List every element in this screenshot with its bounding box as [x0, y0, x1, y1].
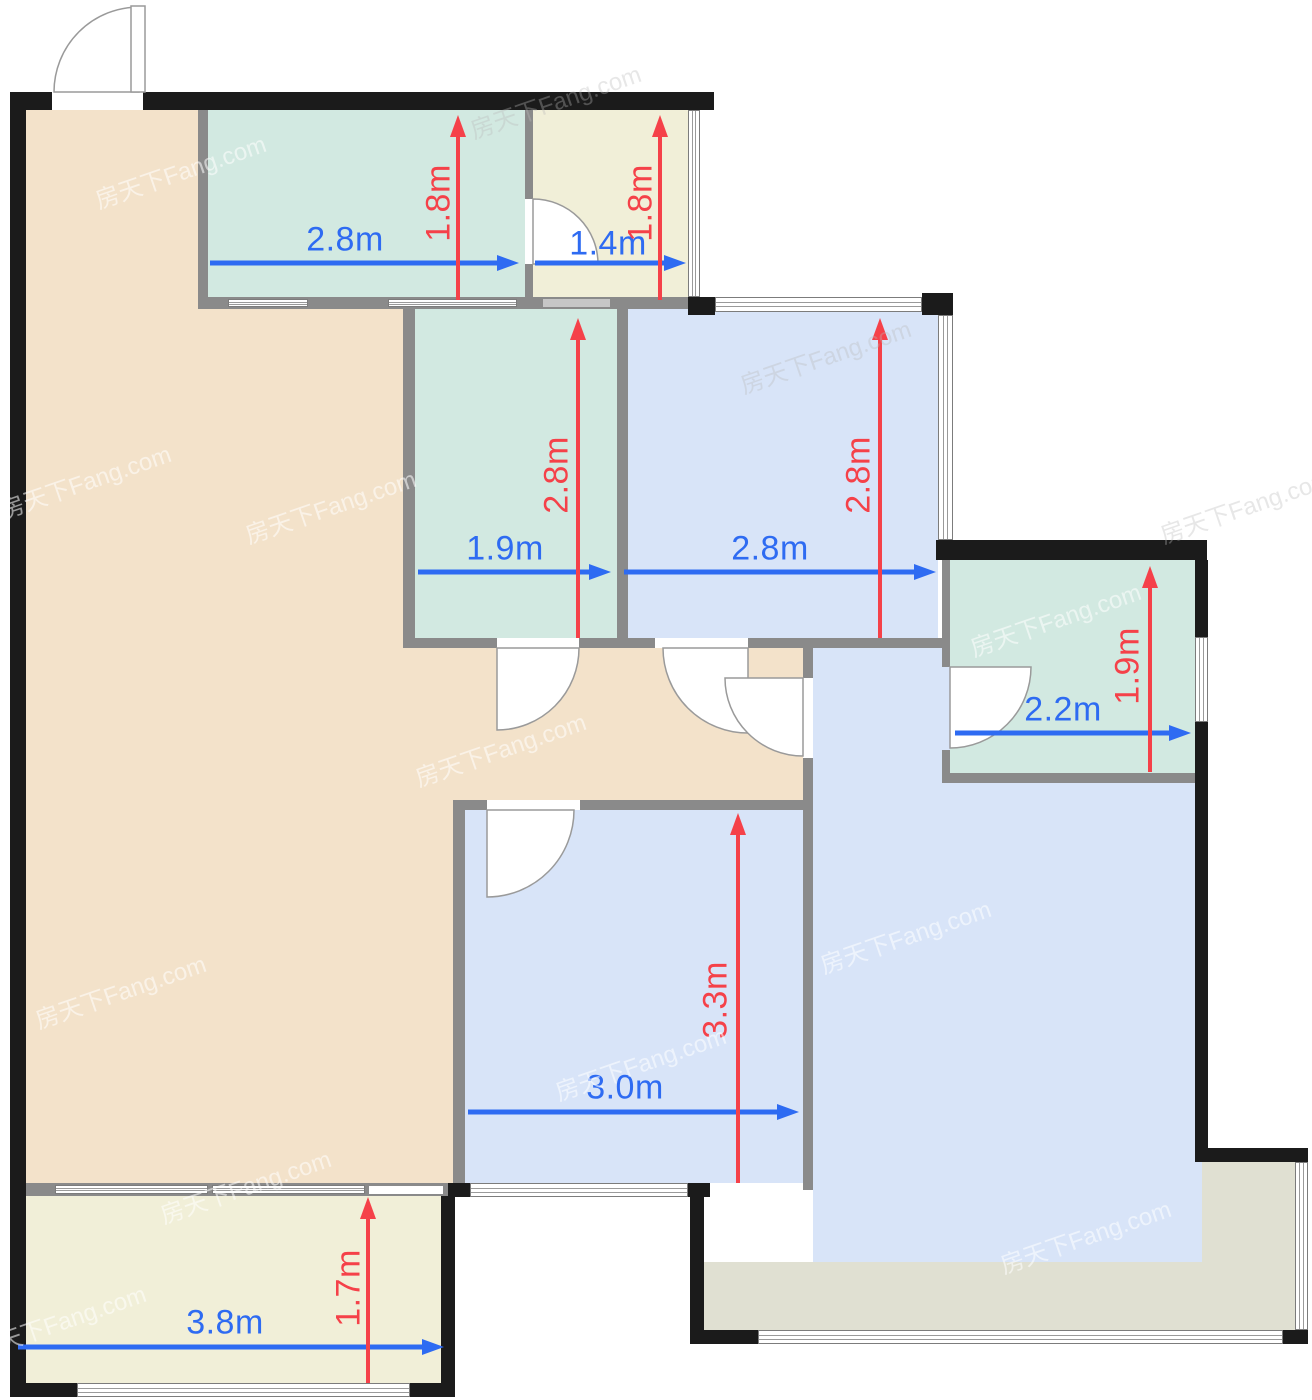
dim-bottom-balcony-width: 3.8m	[186, 1304, 264, 1343]
dim-bottom-middle-room-width: 3.0m	[586, 1069, 664, 1108]
dim-middle-right-room-depth: 2.8m	[840, 436, 879, 514]
dim-middle-left-room-width: 1.9m	[466, 530, 544, 569]
entry-door-leaf	[131, 6, 145, 92]
dim-bottom-middle-room-depth: 3.3m	[697, 961, 736, 1039]
floor-plan: 2.8m 1.4m 1.9m 2.8m 2.2m 3.0m 3.8m 1.8m …	[0, 0, 1312, 1400]
door-arc	[950, 667, 1031, 748]
dim-top-left-room-width: 2.8m	[306, 221, 384, 260]
dim-bottom-balcony-depth: 1.7m	[330, 1249, 369, 1327]
entry-door-arc	[54, 7, 139, 92]
dim-middle-right-room-width: 2.8m	[731, 530, 809, 569]
dim-middle-left-room-depth: 2.8m	[538, 436, 577, 514]
door-arc	[487, 810, 574, 897]
dim-top-right-room-depth: 1.8m	[622, 164, 661, 242]
dim-right-room-depth: 1.9m	[1109, 627, 1148, 705]
door-arc	[497, 648, 579, 730]
dim-right-room-width: 2.2m	[1024, 691, 1102, 730]
dim-top-left-room-depth: 1.8m	[420, 164, 459, 242]
door-arc	[725, 678, 803, 756]
